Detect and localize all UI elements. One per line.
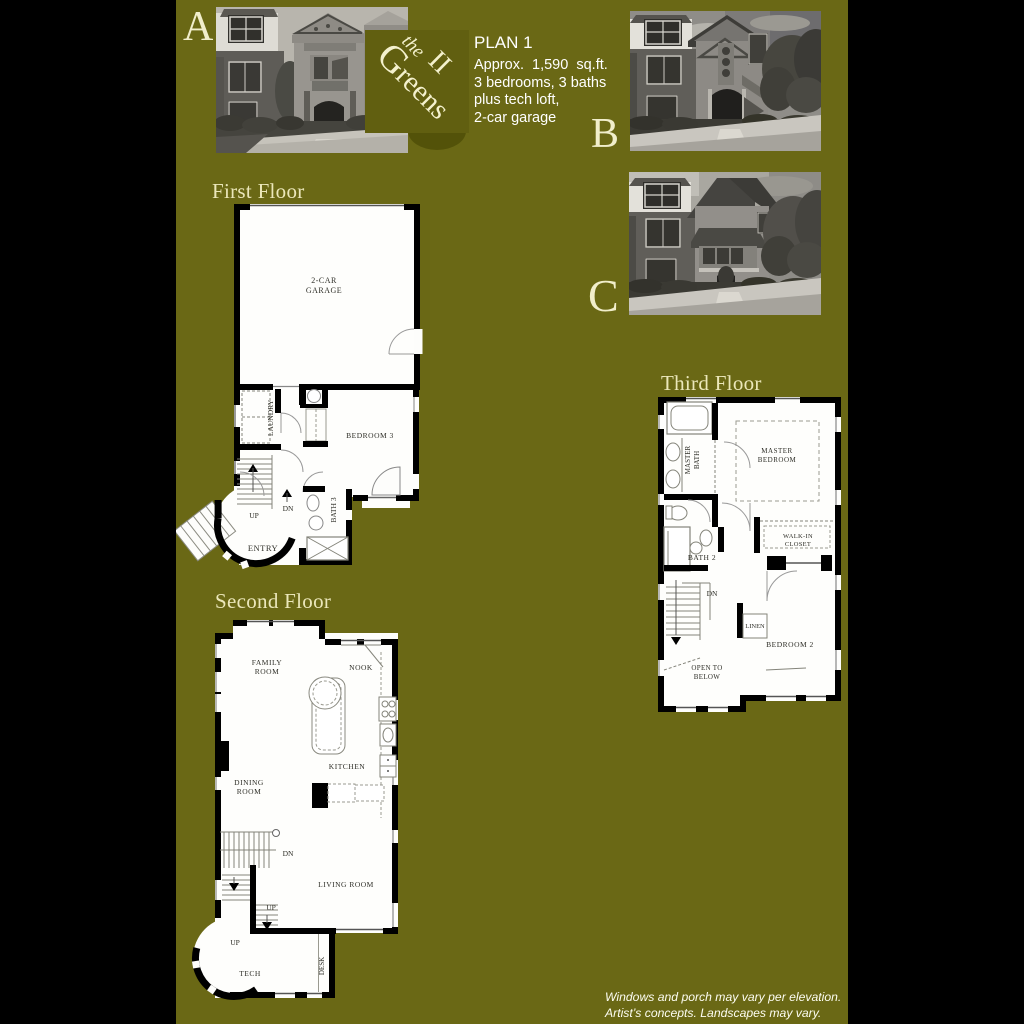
svg-text:GARAGE: GARAGE — [306, 286, 342, 295]
svg-text:TECH: TECH — [239, 969, 261, 978]
svg-text:UP: UP — [249, 511, 259, 520]
svg-text:DESK: DESK — [318, 957, 326, 975]
svg-text:ENTRY: ENTRY — [248, 543, 278, 553]
svg-text:LAUNDRY: LAUNDRY — [266, 399, 275, 436]
svg-text:ROOM: ROOM — [255, 667, 280, 676]
svg-text:LINEN: LINEN — [745, 623, 765, 630]
svg-text:BATH 2: BATH 2 — [688, 553, 716, 562]
svg-text:NOOK: NOOK — [349, 663, 373, 672]
svg-text:BEDROOM 2: BEDROOM 2 — [766, 640, 814, 649]
svg-text:LIVING ROOM: LIVING ROOM — [318, 880, 374, 889]
svg-text:DN: DN — [283, 504, 294, 513]
svg-text:KITCHEN: KITCHEN — [329, 762, 365, 771]
svg-text:CLOSET: CLOSET — [785, 541, 811, 548]
svg-text:BATH 3: BATH 3 — [329, 497, 338, 522]
svg-text:MASTER: MASTER — [761, 447, 792, 455]
svg-text:2-CAR: 2-CAR — [311, 276, 337, 285]
svg-text:DINING: DINING — [234, 778, 264, 787]
svg-text:BEDROOM: BEDROOM — [758, 456, 797, 464]
svg-text:FAMILY: FAMILY — [252, 658, 283, 667]
svg-text:DN: DN — [283, 849, 294, 858]
svg-text:ROOM: ROOM — [237, 787, 262, 796]
svg-text:BELOW: BELOW — [694, 673, 720, 681]
svg-text:WALK-IN: WALK-IN — [783, 533, 813, 540]
svg-text:UP: UP — [230, 938, 240, 947]
svg-text:UP: UP — [266, 903, 276, 912]
svg-text:BEDROOM 3: BEDROOM 3 — [346, 431, 394, 440]
svg-text:OPEN TO: OPEN TO — [691, 664, 722, 672]
svg-text:DN: DN — [707, 589, 718, 598]
svg-text:BATH: BATH — [693, 451, 701, 469]
svg-text:MASTER: MASTER — [684, 445, 692, 474]
